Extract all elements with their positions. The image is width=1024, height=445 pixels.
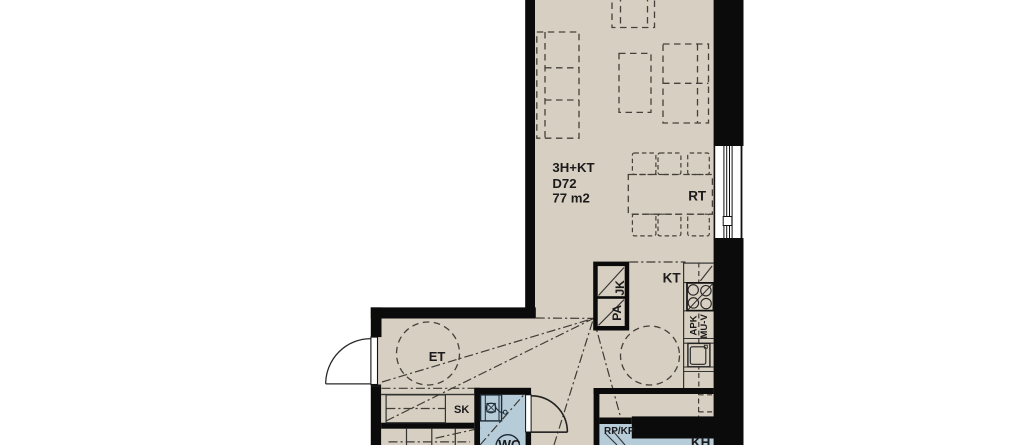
svg-text:SK: SK xyxy=(454,404,469,416)
svg-text:77 m2: 77 m2 xyxy=(552,191,589,206)
svg-text:WC: WC xyxy=(498,437,521,445)
svg-text:D72: D72 xyxy=(552,176,576,191)
svg-text:KH: KH xyxy=(691,435,711,445)
svg-text:JK: JK xyxy=(613,280,627,296)
svg-text:ET: ET xyxy=(429,349,446,364)
svg-text:KT: KT xyxy=(663,271,682,286)
svg-text:RT: RT xyxy=(688,189,707,204)
svg-text:3H+KT: 3H+KT xyxy=(552,160,594,175)
svg-text:APK: APK xyxy=(689,315,700,335)
svg-text:PA: PA xyxy=(610,305,624,321)
svg-text:MU-V: MU-V xyxy=(699,314,710,339)
svg-text:RP/KP: RP/KP xyxy=(604,426,635,437)
